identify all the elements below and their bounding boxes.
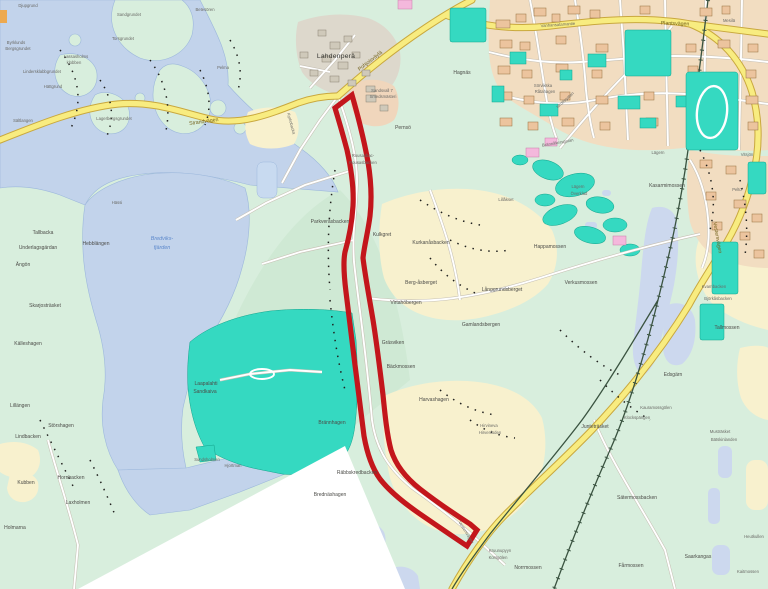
place-label: Störshagen [48, 423, 74, 429]
place-label: Räbbskredbacken [337, 470, 378, 476]
place-label: Hebblängen [83, 241, 110, 247]
place-label: Källeshagen [14, 341, 42, 347]
place-label: Lindbacken [15, 434, 41, 440]
place-label: Edsgärn [664, 372, 683, 378]
place-label: Byrklunds [7, 40, 25, 45]
place-label: Sörvikska [534, 83, 553, 88]
place-label: Pernsö [395, 125, 411, 131]
place-label: Djupgrund [18, 3, 38, 8]
place-label: Hjortman [225, 463, 243, 468]
place-label: Rousasbacken [349, 160, 377, 165]
place-label: Laapalahti [194, 381, 217, 387]
stadium [686, 72, 738, 150]
place-label: Lillängen [10, 403, 30, 409]
place-label: Sundsholmen [194, 457, 220, 462]
place-label: Harvashagen [419, 397, 449, 403]
place-label: Pelto [732, 187, 742, 192]
place-label: Betesören [195, 7, 215, 12]
place-label: Musträsket [710, 429, 731, 434]
place-label: Norrmossen [514, 565, 541, 571]
place-label: Kruunupyyn [489, 548, 512, 553]
place-label: Överklad [571, 191, 588, 196]
place-label: Skarjosträsket [29, 303, 61, 309]
place-label: Pelma [217, 65, 230, 70]
place-label: Lindersklabbgrundet [23, 69, 62, 74]
place-label: Hättgrund [44, 84, 63, 89]
place-label: Korsgölen [489, 555, 509, 560]
place-label: Sandsvall 7 [371, 88, 393, 93]
place-label: Underlagsgärdan [19, 245, 58, 251]
place-label: Torsgrundet [112, 36, 135, 41]
place-label: Sältlangen [13, 118, 33, 123]
place-label: Ängön [16, 261, 31, 268]
place-label: Fårmossen [618, 562, 643, 569]
place-label: Bätskinlanden [711, 437, 738, 442]
place-label: Lahdenperä [317, 53, 355, 60]
place-label: Happamossen [534, 244, 566, 250]
place-label: Saarkangas [685, 554, 712, 560]
place-label: Lagerbergsgrundet [96, 116, 132, 121]
place-label: Gräsviken [382, 340, 405, 346]
place-label: Berg-åsberget [405, 279, 437, 286]
place-label: Lassasholms [64, 54, 88, 59]
place-label: Bäckmossen [387, 364, 416, 370]
place-label: Långgrundsberget [482, 286, 523, 293]
place-label: Hirvenloden [479, 430, 502, 435]
place-label: Parkveråsbacken [311, 218, 350, 225]
place-label: Lägern [651, 150, 665, 155]
place-label: Kulkgret [373, 232, 392, 238]
place-label: Klockspängen [624, 415, 651, 420]
place-label: Sandkaiva [193, 389, 217, 395]
place-label: Kauramossgölen [640, 405, 672, 410]
place-label: Verkusmossen [565, 280, 598, 286]
place-label: Laxholmen [66, 500, 91, 506]
place-label: Gamlandsbergen [462, 322, 501, 328]
place-label: Kvarnbacken [702, 284, 727, 289]
place-label: Vitsjön [741, 152, 754, 157]
map-canvas: Lahdenperä Strandvägen Pohjoisväylä Plan… [0, 0, 768, 589]
map-edge-marker [0, 10, 7, 23]
place-label: Mesilä [723, 18, 736, 23]
place-label: Hässi [112, 200, 123, 205]
water-label: Bredviks- [151, 236, 174, 242]
place-label: Rousasbac- [352, 153, 375, 158]
place-label: Sätermossbacken [617, 495, 657, 501]
place-label: Tallbacka [33, 230, 54, 236]
road-label: Plantsvägen [661, 21, 690, 28]
place-label: Brännhagen [318, 420, 345, 426]
place-label: Junteträsket [581, 424, 609, 430]
place-label: Holmarna [4, 525, 26, 531]
place-label: Virtahöbergen [390, 300, 422, 306]
place-label: Lillåkset [498, 197, 514, 202]
place-label: Råtahagen [535, 89, 556, 94]
place-label: Smedsmästeri [370, 94, 397, 99]
place-label: Bergsgrundet [5, 46, 31, 51]
place-label: Hagnäs [453, 70, 471, 76]
place-label: Hornbacken [58, 475, 85, 481]
place-label: Tallmossen [714, 325, 739, 331]
place-label: Björkåsbacken [704, 296, 732, 301]
place-label: Lägern [571, 184, 585, 189]
place-label: Kaitmossen [737, 569, 760, 574]
place-label: Kubben [17, 480, 34, 486]
place-label: Kasarmimossen [649, 183, 685, 189]
place-label: Hirvineva [480, 423, 498, 428]
water-label: fjärden [154, 245, 170, 251]
place-label: Kurkanåsbacken [412, 239, 449, 246]
place-label: Brednäshagen [314, 492, 347, 498]
place-label: Sandgrundet [117, 12, 142, 17]
place-label: klobben [67, 60, 82, 65]
place-label: Heutkullen [744, 534, 764, 539]
